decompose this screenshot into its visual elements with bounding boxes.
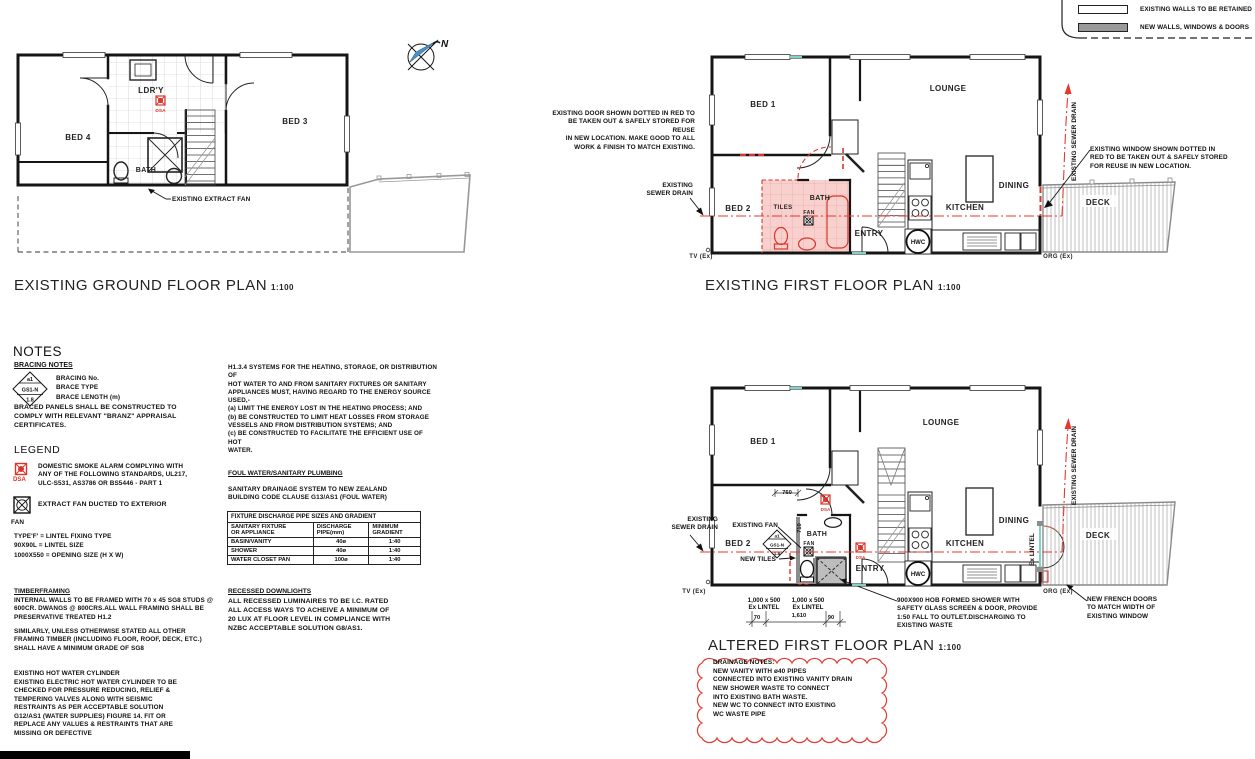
legend-existing-walls-label: EXISTING WALLS TO BE RETAINED [1140,6,1252,14]
svg-text:DSA: DSA [856,555,866,560]
dim-70: 70 [754,615,760,621]
timber-framing-note: INTERNAL WALLS TO BE FRAMED WITH 70 x 45… [14,597,213,622]
altered-sewer-right-note: EXISTING SEWER DRAIN [1071,423,1079,505]
downlights-heading: RECESSED DOWNLIGHTS [228,588,311,595]
dsa-legend-label: DSA [13,477,26,485]
altered-bracing-diamond: a1 GS1-N 1.8 [763,530,791,558]
dsa-legend-icon [14,462,28,476]
svg-text:GS1-N: GS1-N [770,543,785,548]
room-label-kitchen-altered: KITCHEN [946,539,984,548]
table-col-gradient: MINIMUM GRADIENT [369,523,421,538]
room-label-lounge: LOUNGE [930,84,967,93]
timber-framing-note2: SIMILARLY, UNLESS OTHERWISE STATED ALL O… [14,628,202,653]
bracing-notes-heading: BRACING NOTES [14,362,73,369]
cell-fixture: SHOWER [228,547,314,556]
room-label-dining: DINING [999,181,1029,190]
dim-1610: 1,610 [792,613,807,619]
altered-closet [832,451,864,503]
svg-text:HWC: HWC [911,240,926,246]
legend-swatch-existing-walls [1078,5,1128,14]
dim-710: 710 [797,523,803,533]
smoke-alarm-note: DOMESTIC SMOKE ALARM COMPLYING WITH ANY … [38,463,187,488]
room-label-bath-ground: BATH [136,167,157,174]
table-row: WATER CLOSET PAN 100ø 1:40 [228,556,421,565]
table-row: SHOWER 40ø 1:40 [228,547,421,556]
room-label-bed3: BED 3 [282,117,308,126]
first-sewer-left-note: EXISTING SEWER DRAIN [608,182,693,199]
cell-fixture: WATER CLOSET PAN [228,556,314,565]
altered-ex-lintel-vertical: Ex LINTEL [1029,518,1037,566]
cell-pipe: 100ø [313,556,369,565]
dim-90: 90 [828,615,834,621]
bracing-key: BRACING No. BRACE TYPE BRACE LENGTH (m) [56,374,120,402]
altered-shower-note: 900X900 HOB FORMED SHOWER WITH SAFETY GL… [897,597,1057,631]
label-tv-first: TV (Ex) [689,254,712,260]
cell-gradient: 1:40 [369,556,421,565]
room-label-kitchen: KITCHEN [946,203,984,212]
ground-plan-scale: 1:100 [271,283,294,292]
room-label-tiles: TILES [773,205,792,211]
altered-smoke-alarms: DSA DSA [821,495,866,560]
room-label-bed1: BED 1 [750,100,776,109]
ground-deck [350,173,470,253]
svg-text:GS1-N: GS1-N [22,388,39,394]
label-tv-altered: TV (Ex) [682,589,705,595]
first-plan-scale: 1:100 [938,283,961,292]
altered-sewer-left-note: EXISTING SEWER DRAIN [638,516,718,533]
ground-tile-floors [108,55,226,185]
room-label-bed4: BED 4 [65,133,91,142]
label-org-first: ORG (Ex) [1043,254,1073,260]
altered-plan-scale: 1:100 [939,643,962,652]
table-col-fixture: SANITARY FIXTURE OR APPLIANCE [228,523,314,538]
table-col-pipe: DISCHARGE PIPE(mm) [313,523,369,538]
notes-heading: NOTES [13,344,62,359]
first-hwc: HWC [905,229,931,254]
first-sewer-right-note: EXISTING SEWER DRAIN [1071,93,1079,181]
downlights-body: ALL RECESSED LUMINAIRES TO BE I.C. RATED… [228,598,390,634]
room-label-bed2-altered: BED 2 [725,539,751,548]
room-label-dining-altered: DINING [999,516,1029,525]
svg-text:N: N [441,39,449,50]
altered-existing-fan-note: EXISTING FAN [722,522,778,530]
svg-text:a1: a1 [774,534,780,539]
legend-heading: LEGEND [14,444,60,456]
cell-fixture: BASIN/VANITY [228,538,314,547]
lintel-key-note: TYPE'F' = LINTEL FIXING TYPE 90X90L = LI… [14,532,123,560]
cell-pipe: 40ø [313,547,369,556]
altered-floor-plan-drawing: a1 GS1-N 1.8 DSA DSA [550,375,1255,759]
fan-legend-icon [12,495,32,515]
fan-legend-label: FAN [11,519,24,527]
ground-extract-fan-leader [148,189,171,200]
room-label-deck-first: DECK [1086,198,1110,207]
svg-text:1.8: 1.8 [26,398,34,404]
extract-fan-legend-note: EXTRACT FAN DUCTED TO EXTERIOR [38,501,167,510]
ground-floor-plan-drawing: DSA N [8,38,488,283]
label-org-altered: ORG (Ex) [1043,589,1073,595]
sheet-edge-bar [0,751,190,759]
room-label-entry-first: ENTRY [855,229,884,238]
legend-swatch-new-walls [1078,23,1128,32]
cell-pipe: 40ø [313,538,369,547]
h1-systems-note: H1.3.4 SYSTEMS FOR THE HEATING, STORAGE,… [228,364,438,455]
first-door-note: EXISTING DOOR SHOWN DOTTED IN RED TO BE … [552,110,695,152]
legend-new-walls-label: NEW WALLS, WINDOWS & DOORS [1140,24,1249,32]
altered-plan-title: ALTERED FIRST FLOOR PLAN1:100 [708,637,961,654]
first-closet [832,120,864,172]
drainage-notes-cloud-text: DRAINAGE NOTES: NEW VANITY WITH ø40 PIPE… [713,659,878,719]
room-label-fan-first: FAN [803,210,814,216]
svg-text:DSA: DSA [155,108,166,114]
altered-new-tiles-note: NEW TILES [730,556,776,564]
foul-water-body: SANITARY DRAINAGE SYSTEM TO NEW ZEALAND … [228,486,387,503]
foul-water-heading: FOUL WATER/SANITARY PLUMBING [228,470,343,477]
hwc-notes-body: EXISTING ELECTRIC HOT WATER CYLINDER TO … [14,679,177,738]
dim-lintel1: 1,000 x 500 Ex LINTEL [748,597,781,611]
first-fan-icon [804,216,813,225]
table-title: FIXTURE DISCHARGE PIPE SIZES AND GRADIEN… [228,512,421,523]
room-label-fan-altered: FAN [803,541,814,547]
first-plan-title: EXISTING FIRST FLOOR PLAN1:100 [705,277,961,294]
svg-text:a1: a1 [27,377,33,383]
hwc-notes-heading: EXISTING HOT WATER CYLINDER [14,670,120,677]
extract-fan-note: EXISTING EXTRACT FAN [172,196,250,204]
table-row: BASIN/VANITY 40ø 1:40 [228,538,421,547]
first-window-note: EXISTING WINDOW SHOWN DOTTED IN RED TO B… [1090,146,1255,171]
room-label-deck-altered: DECK [1086,531,1110,540]
svg-text:DSA: DSA [821,507,831,512]
braced-panels-note: BRACED PANELS SHALL BE CONSTRUCTED TO CO… [14,404,177,431]
room-label-bath-altered: BATH [807,531,828,538]
bracing-diamond-legend: a1 GS1-N 1.8 [10,370,50,408]
cell-gradient: 1:40 [369,547,421,556]
room-label-entry-altered: ENTRY [856,564,885,573]
room-label-bed2: BED 2 [725,204,751,213]
north-compass-icon: N [408,39,449,70]
architectural-drawing-sheet: EXISTING WALLS TO BE RETAINED NEW WALLS,… [0,0,1255,759]
altered-stairs [878,448,905,562]
svg-text:HWC: HWC [911,572,926,578]
room-label-lounge-altered: LOUNGE [923,418,960,427]
altered-hwc: HWC [905,561,931,586]
room-label-bath-first: BATH [810,195,831,202]
room-label-bed1-altered: BED 1 [750,437,776,446]
fixture-discharge-table: FIXTURE DISCHARGE PIPE SIZES AND GRADIEN… [227,511,421,565]
room-label-ldry: LDR'Y [138,86,164,95]
altered-teal-thresholds [790,388,866,585]
ground-plan-title: EXISTING GROUND FLOOR PLAN1:100 [14,277,294,294]
dim-760: 760 [782,490,792,496]
altered-french-doors-note: NEW FRENCH DOORS TO MATCH WIDTH OF EXIST… [1087,596,1202,621]
timber-framing-heading: TIMBERFRAMING [14,588,70,595]
cell-gradient: 1:40 [369,538,421,547]
dim-lintel2: 1,000 x 500 Ex LINTEL [792,597,825,611]
